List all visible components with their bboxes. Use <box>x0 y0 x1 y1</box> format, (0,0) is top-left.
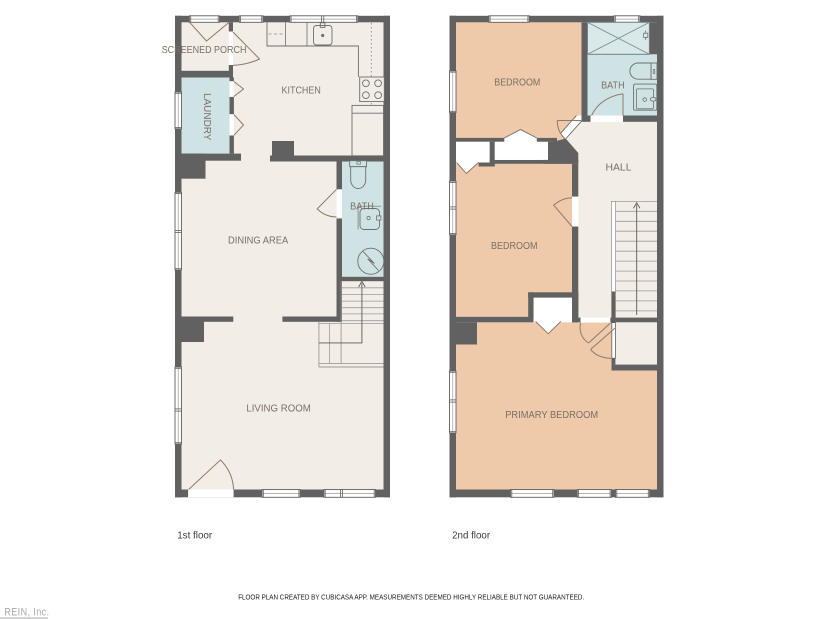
svg-text:BEDROOM: BEDROOM <box>494 78 540 89</box>
svg-text:HALL: HALL <box>606 162 632 173</box>
svg-text:BEDROOM: BEDROOM <box>491 241 538 252</box>
svg-text:BATH: BATH <box>601 80 625 91</box>
svg-text:LIVING ROOM: LIVING ROOM <box>246 404 311 415</box>
svg-text:SCREENED PORCH: SCREENED PORCH <box>162 45 247 56</box>
svg-text:PRIMARY BEDROOM: PRIMARY BEDROOM <box>505 410 598 421</box>
svg-text:1st floor: 1st floor <box>177 529 212 541</box>
svg-text:KITCHEN: KITCHEN <box>282 86 321 97</box>
svg-text:REIN, Inc.: REIN, Inc. <box>4 606 49 618</box>
svg-text:LAUNDRY: LAUNDRY <box>201 93 212 141</box>
svg-text:FLOOR PLAN CREATED BY CUBICASA: FLOOR PLAN CREATED BY CUBICASA APP. MEAS… <box>238 593 584 602</box>
svg-text:BATH: BATH <box>350 202 374 213</box>
svg-text:DINING AREA: DINING AREA <box>228 236 288 247</box>
svg-text:2nd floor: 2nd floor <box>452 529 490 541</box>
